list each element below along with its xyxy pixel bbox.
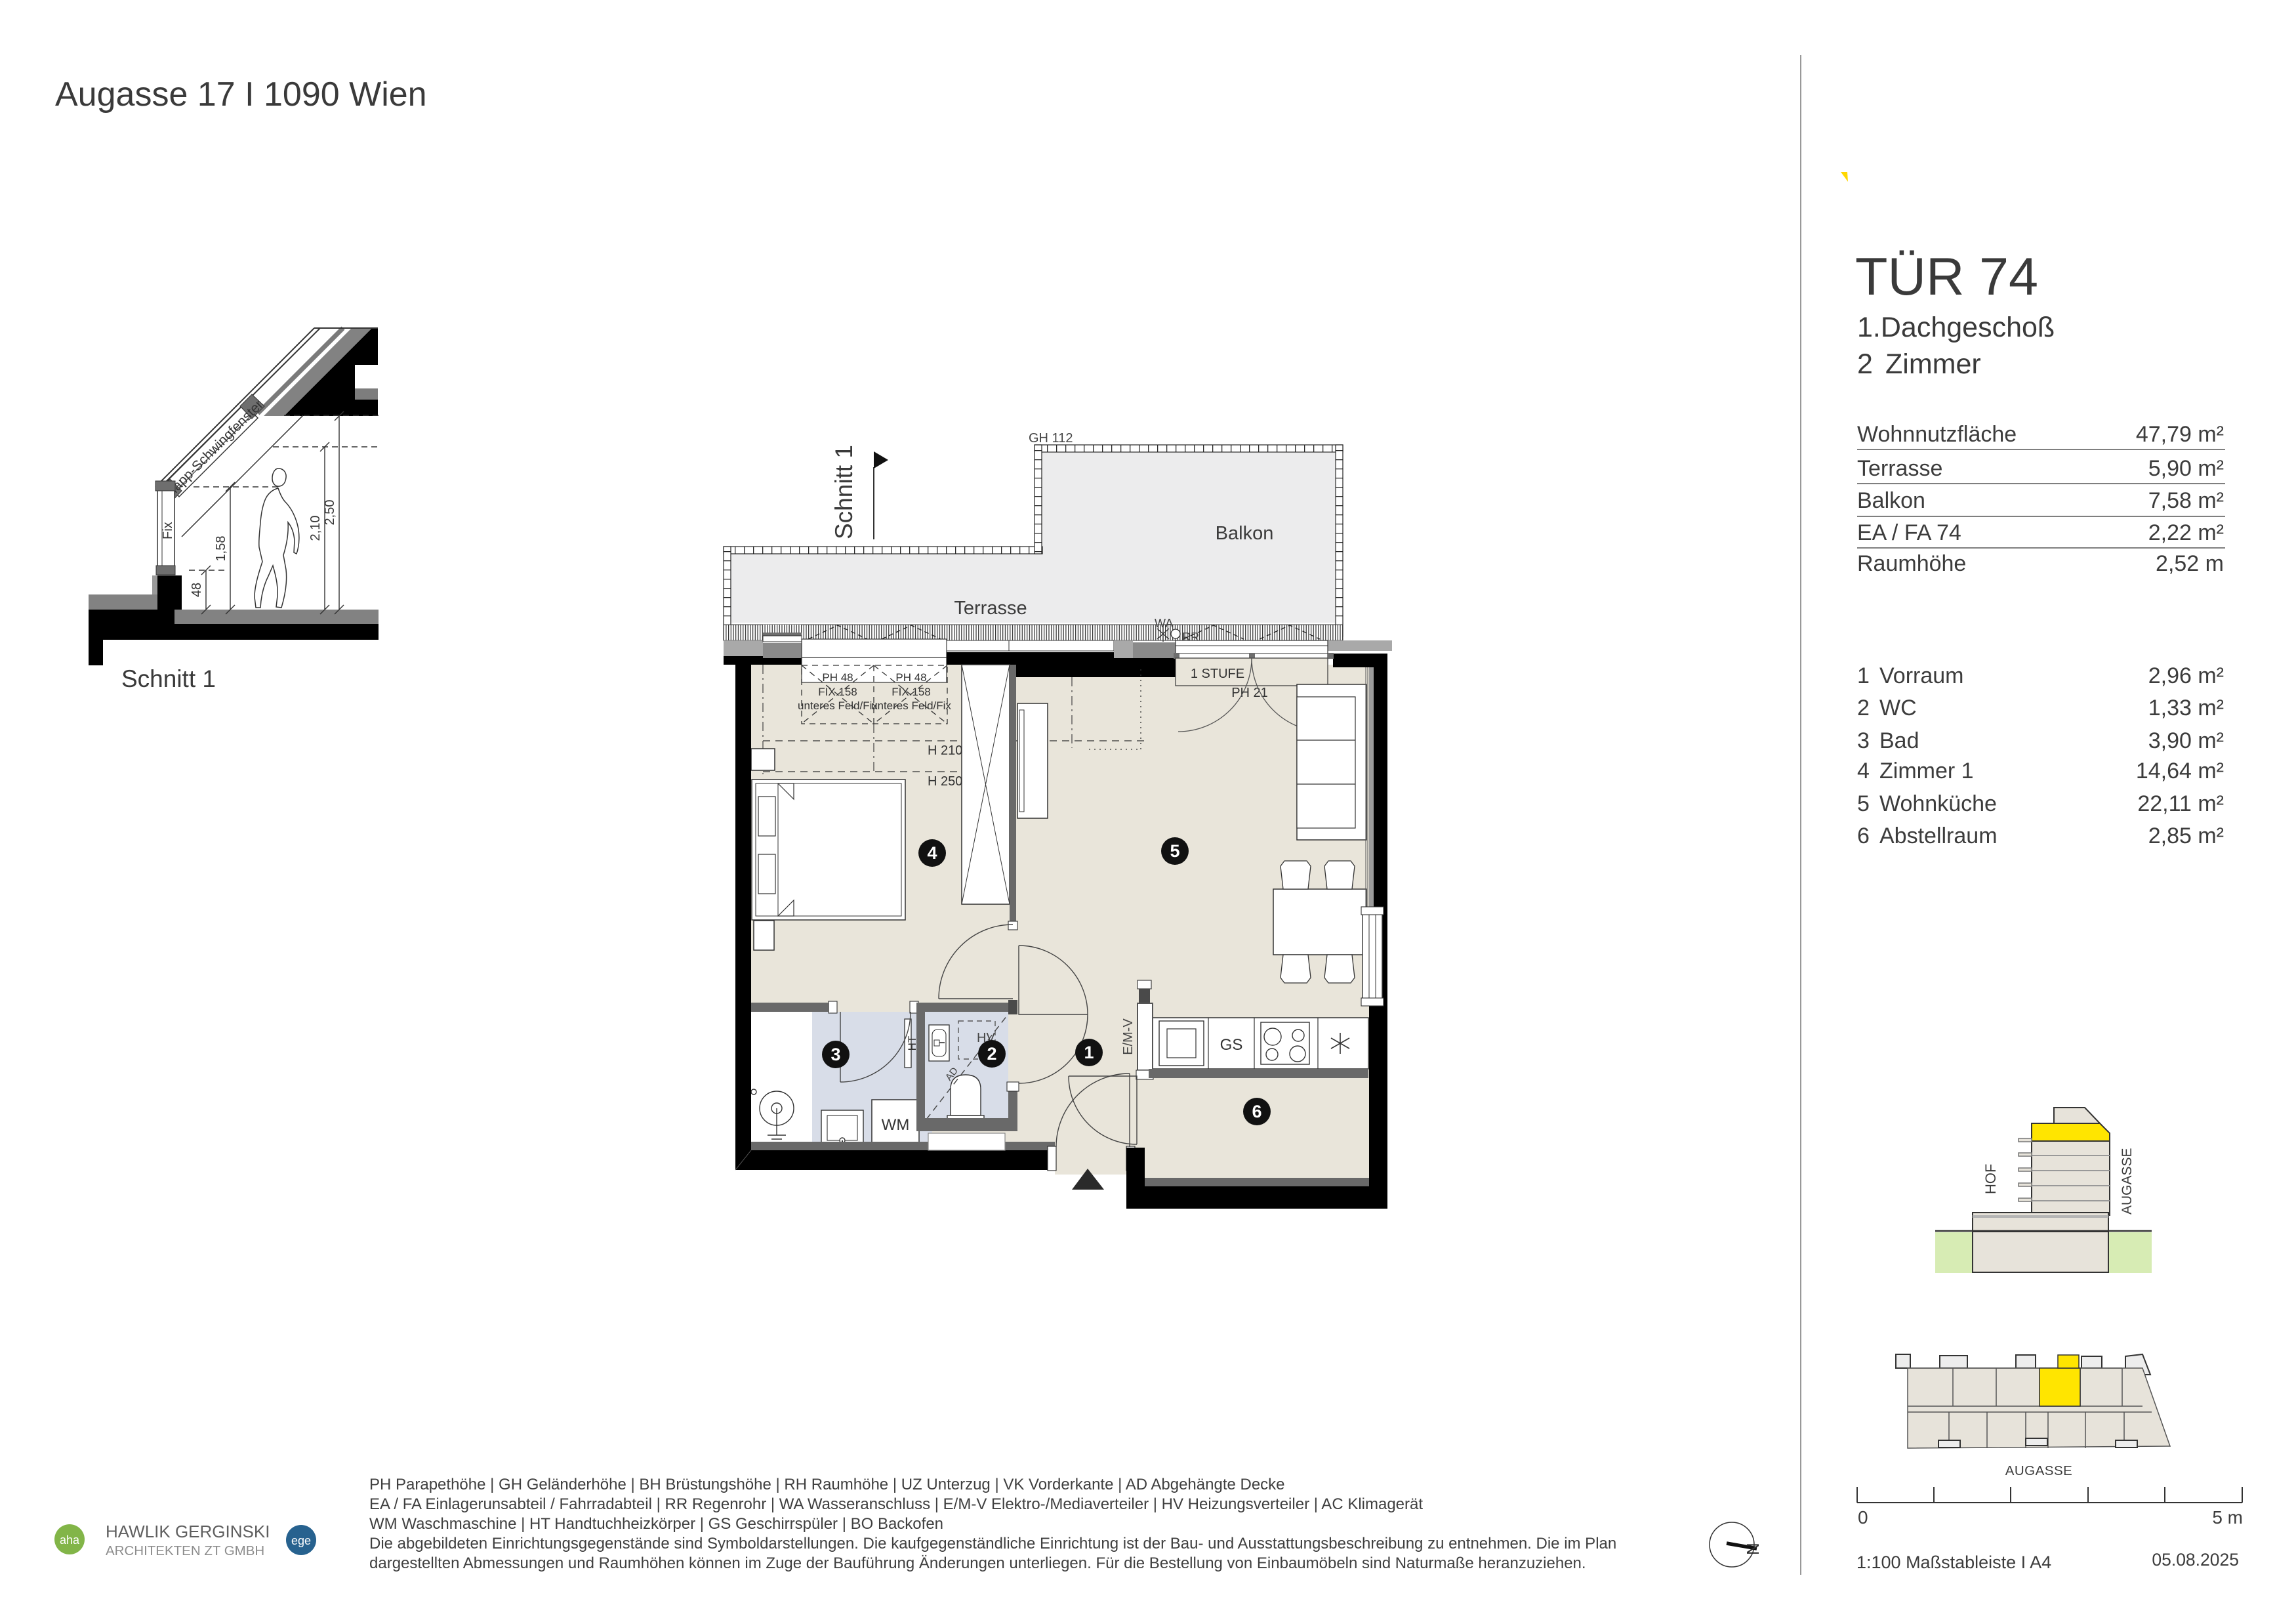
svg-text:Schnitt 1: Schnitt 1: [830, 445, 857, 539]
svg-text:1: 1: [1857, 663, 1870, 688]
svg-text:Abstellraum: Abstellraum: [1879, 823, 1998, 848]
svg-text:Balkon: Balkon: [1857, 488, 1925, 513]
svg-text:TÜR 74: TÜR 74: [1855, 247, 2038, 306]
svg-text:GS: GS: [1220, 1036, 1243, 1054]
svg-text:EA / FA Einlagerunsabteil / Fa: EA / FA Einlagerunsabteil / Fahrradabtei…: [369, 1495, 1423, 1513]
svg-text:2,96 m²: 2,96 m²: [2148, 663, 2224, 688]
svg-text:Zimmer 1: Zimmer 1: [1879, 759, 1974, 783]
svg-text:ARCHITEKTEN ZT GMBH: ARCHITEKTEN ZT GMBH: [106, 1543, 264, 1558]
svg-text:H 210: H 210: [928, 743, 962, 758]
svg-text:2: 2: [987, 1044, 996, 1064]
svg-text:Schnitt 1: Schnitt 1: [121, 665, 216, 692]
svg-text:5 m: 5 m: [2212, 1507, 2243, 1528]
svg-text:Terrasse: Terrasse: [954, 598, 1027, 619]
svg-text:1.Dachgeschoß: 1.Dachgeschoß: [1857, 312, 2055, 343]
svg-text:Vorraum: Vorraum: [1879, 663, 1964, 688]
svg-text:2: 2: [1857, 696, 1870, 720]
svg-text:PH 48: PH 48: [895, 671, 926, 684]
svg-text:Augasse 17 I 1090 Wien: Augasse 17 I 1090 Wien: [55, 75, 427, 114]
svg-text:WM: WM: [882, 1116, 910, 1134]
svg-text:2: 2: [1857, 348, 1873, 380]
svg-text:2,85 m²: 2,85 m²: [2148, 823, 2224, 848]
svg-text:4: 4: [927, 843, 937, 863]
svg-text:Balkon: Balkon: [1216, 523, 1274, 544]
svg-text:Wohnnutzfläche: Wohnnutzfläche: [1857, 422, 2017, 447]
svg-text:2,52 m: 2,52 m: [2156, 551, 2224, 576]
svg-text:48: 48: [190, 583, 204, 597]
svg-text:N: N: [1743, 1543, 1763, 1555]
svg-text:Bad: Bad: [1879, 728, 1919, 753]
svg-text:Die abgebildeten Einrichtungsg: Die abgebildeten Einrichtungsgegenstände…: [369, 1535, 1616, 1552]
svg-text:WC: WC: [1879, 696, 1917, 720]
svg-text:3,90 m²: 3,90 m²: [2148, 728, 2224, 753]
svg-text:6: 6: [1252, 1102, 1261, 1121]
svg-text:5: 5: [1170, 841, 1179, 861]
svg-text:1: 1: [1084, 1043, 1094, 1062]
svg-text:GH 112: GH 112: [1029, 431, 1073, 446]
svg-text:3: 3: [830, 1045, 840, 1064]
svg-text:WA: WA: [1155, 617, 1173, 630]
svg-text:PH 21: PH 21: [1231, 686, 1268, 700]
svg-text:22,11 m²: 22,11 m²: [2137, 791, 2224, 816]
svg-text:1,33 m²: 1,33 m²: [2148, 696, 2224, 720]
svg-text:AUGASSE: AUGASSE: [2120, 1148, 2135, 1215]
svg-text:05.08.2025: 05.08.2025: [2152, 1550, 2239, 1570]
svg-text:4: 4: [1857, 759, 1870, 783]
svg-text:3: 3: [1857, 728, 1870, 753]
svg-text:0: 0: [1858, 1507, 1868, 1528]
svg-text:2,10: 2,10: [308, 516, 323, 541]
svg-text:Zimmer: Zimmer: [1885, 348, 1981, 380]
svg-text:EA / FA 74: EA / FA 74: [1857, 520, 1961, 545]
svg-text:1:100 Maßstableiste I A4: 1:100 Maßstableiste I A4: [1856, 1552, 2051, 1572]
svg-text:Terrasse: Terrasse: [1857, 456, 1942, 481]
svg-text:Wohnküche: Wohnküche: [1879, 791, 1997, 816]
svg-text:7,58 m²: 7,58 m²: [2148, 488, 2224, 513]
svg-text:PH Parapethöhe | GH Geländerhö: PH Parapethöhe | GH Geländerhöhe | BH Br…: [369, 1476, 1285, 1493]
svg-text:AUGASSE: AUGASSE: [2005, 1463, 2073, 1478]
svg-text:H 250: H 250: [928, 774, 962, 789]
svg-text:FIX 158: FIX 158: [892, 686, 931, 698]
svg-text:HAWLIK GERGINSKI: HAWLIK GERGINSKI: [106, 1522, 270, 1541]
svg-text:5,90 m²: 5,90 m²: [2148, 456, 2224, 481]
svg-text:PH 48: PH 48: [822, 671, 853, 684]
svg-text:unteres Feld/Fix: unteres Feld/Fix: [798, 699, 878, 712]
svg-text:47,79 m²: 47,79 m²: [2136, 422, 2224, 447]
svg-text:Raumhöhe: Raumhöhe: [1857, 551, 1966, 576]
svg-text:E/M-V: E/M-V: [1121, 1018, 1136, 1055]
svg-text:5: 5: [1857, 791, 1870, 816]
svg-text:1 STUFE: 1 STUFE: [1191, 667, 1244, 681]
svg-text:dargestellten Abmessungen und: dargestellten Abmessungen und Raumhöhen …: [369, 1554, 1586, 1572]
svg-text:WM Waschmaschine | HT Handtuch: WM Waschmaschine | HT Handtuchheizkörper…: [369, 1515, 943, 1533]
svg-text:6: 6: [1857, 823, 1870, 848]
svg-text:Fix: Fix: [161, 522, 175, 539]
svg-text:FIX 158: FIX 158: [818, 686, 857, 698]
svg-text:aha: aha: [60, 1533, 80, 1547]
svg-text:HOF: HOF: [1982, 1164, 1999, 1194]
svg-text:ege: ege: [291, 1534, 311, 1547]
svg-text:2,22 m²: 2,22 m²: [2148, 520, 2224, 545]
svg-text:1,58: 1,58: [214, 536, 228, 562]
svg-text:unteres Feld/Fix: unteres Feld/Fix: [871, 699, 951, 712]
svg-text:14,64 m²: 14,64 m²: [2136, 759, 2224, 783]
